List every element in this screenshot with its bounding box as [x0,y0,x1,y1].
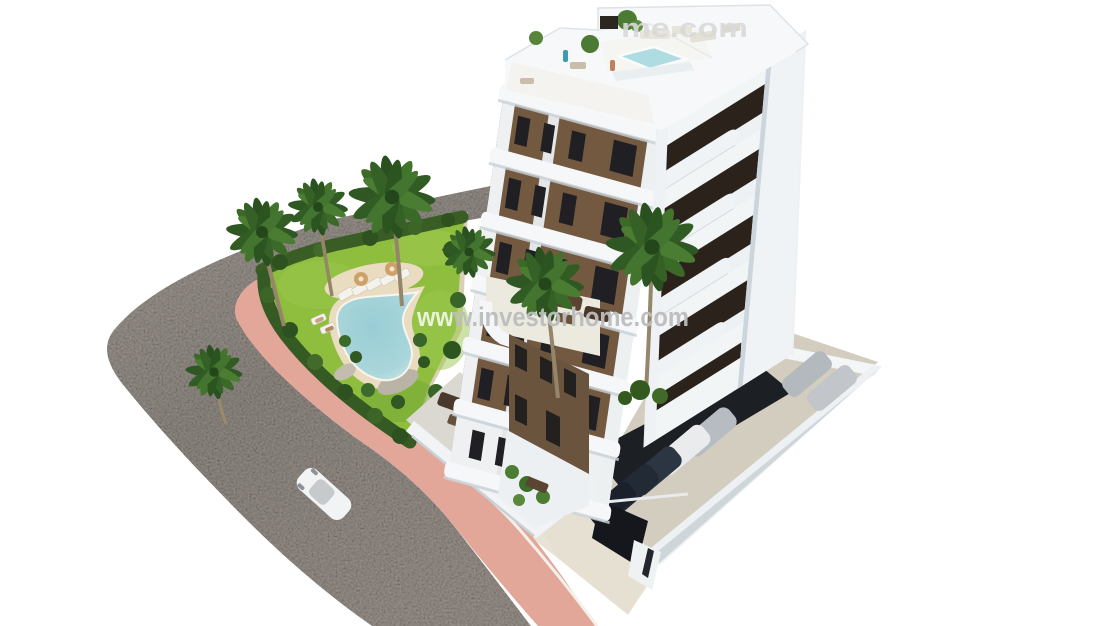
svg-text:me.com: me.com [621,13,748,43]
svg-text:www.investorhome.com: www.investorhome.com [416,302,689,332]
